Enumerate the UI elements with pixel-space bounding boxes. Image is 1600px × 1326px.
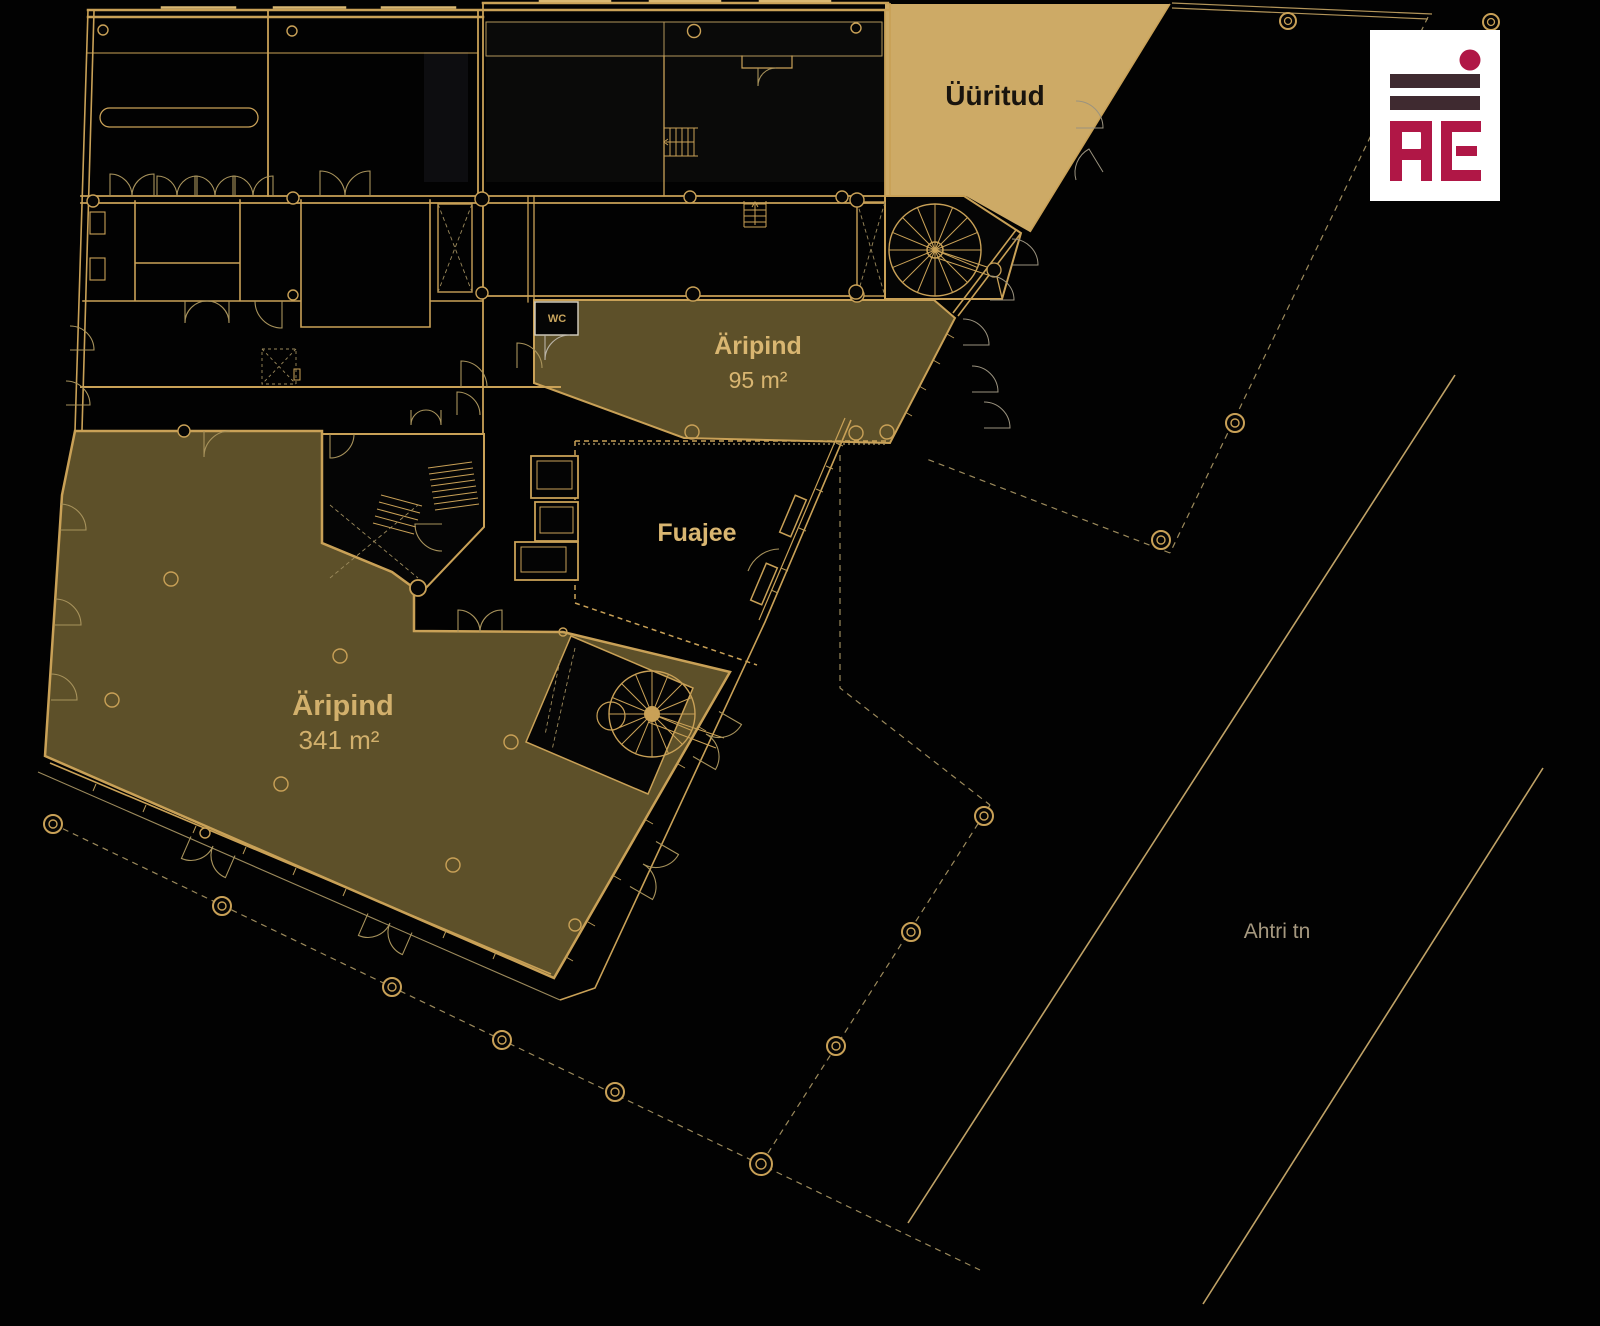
- svg-text:Üüritud: Üüritud: [945, 80, 1045, 111]
- svg-text:WC: WC: [548, 313, 566, 325]
- svg-text:Äripind: Äripind: [292, 689, 394, 722]
- svg-text:95 m²: 95 m²: [729, 367, 788, 393]
- svg-text:Fuajee: Fuajee: [657, 519, 736, 547]
- svg-text:341 m²: 341 m²: [299, 725, 380, 755]
- svg-text:Ahtri tn: Ahtri tn: [1244, 920, 1311, 943]
- svg-text:Äripind: Äripind: [714, 332, 802, 360]
